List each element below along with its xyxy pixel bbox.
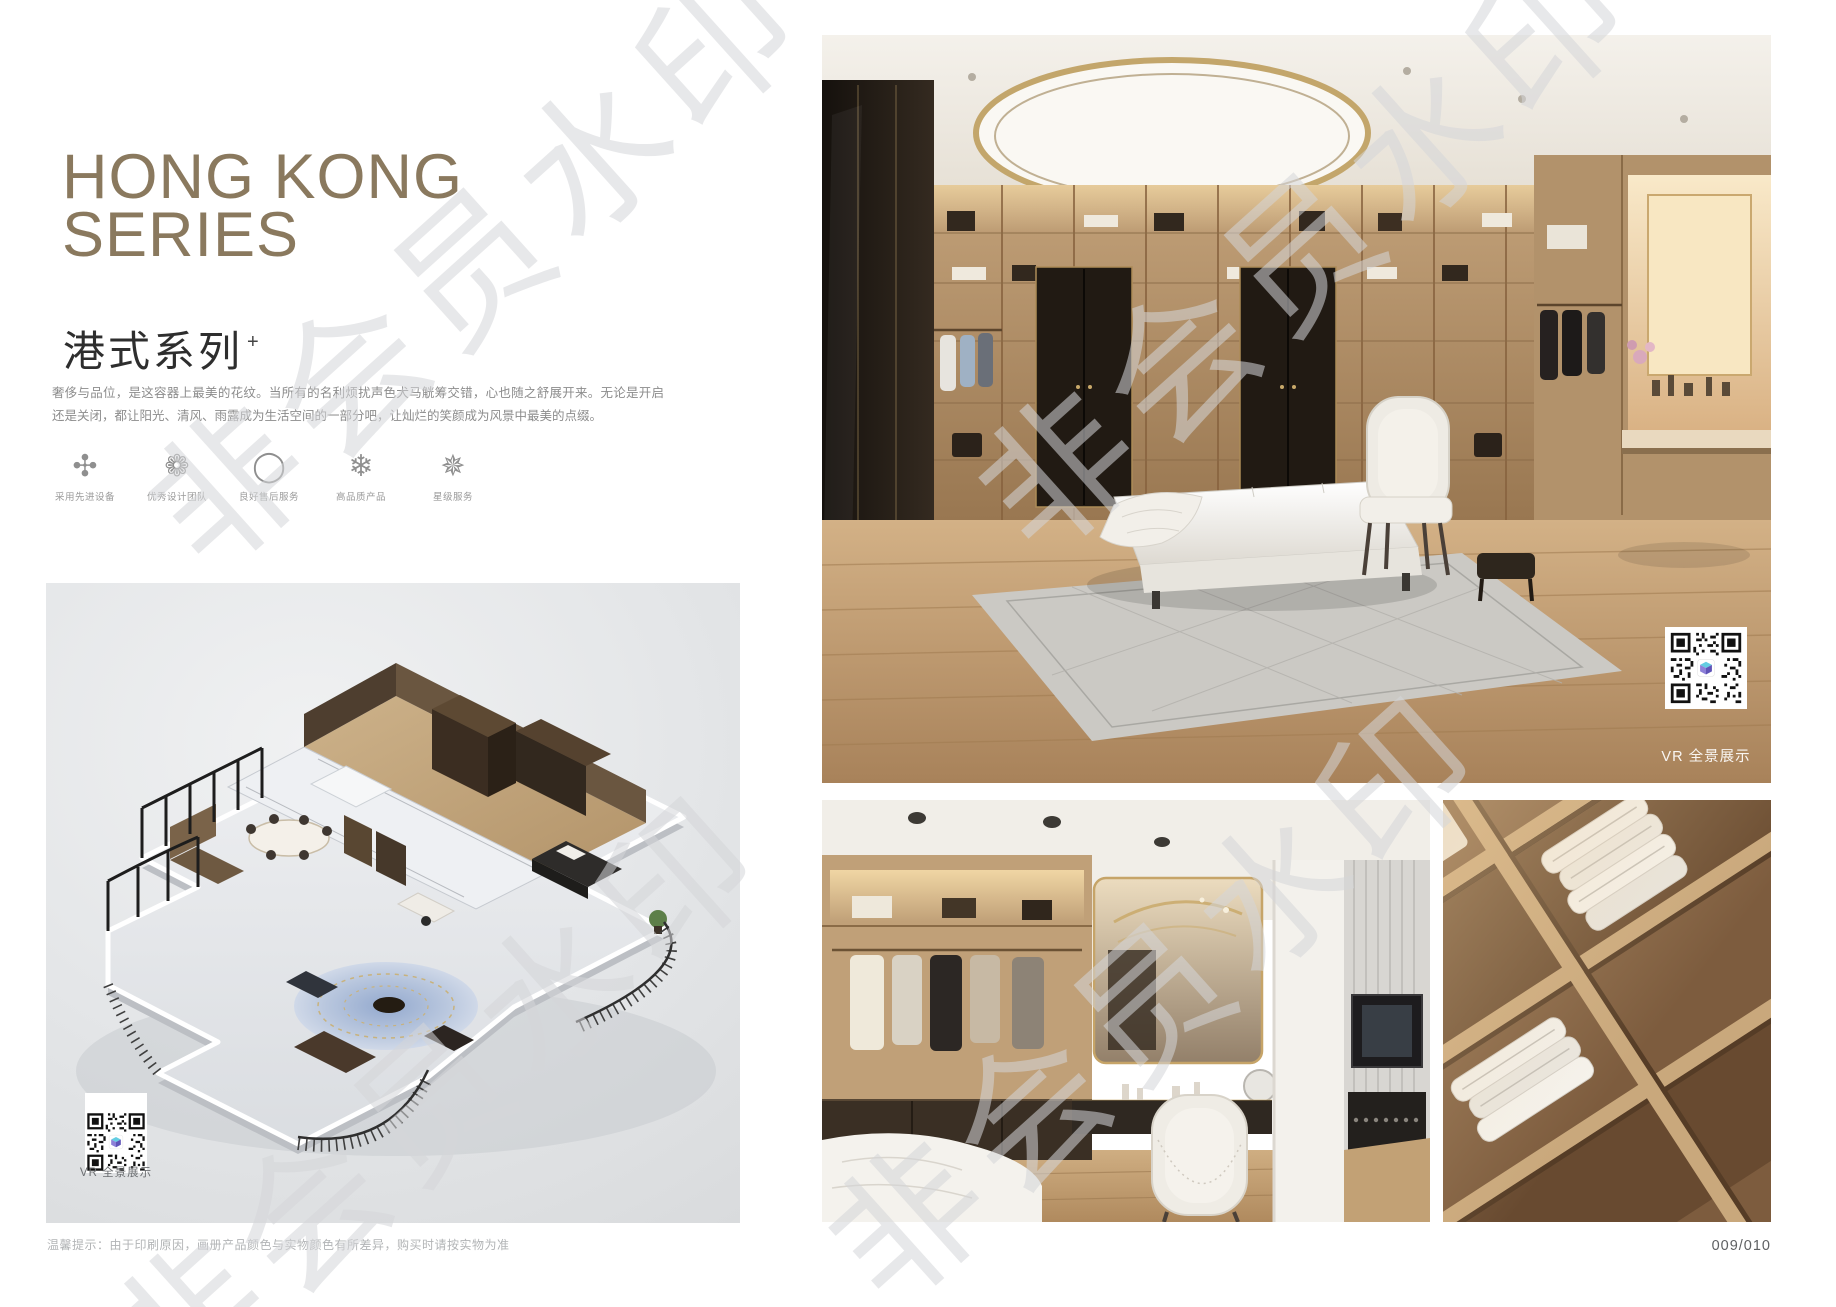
star-service-icon: ✵ bbox=[420, 450, 486, 484]
feature-row: ✣ 采用先进设备 ❁ 优秀设计团队 ◯ 良好售后服务 ❄ 高品质产品 ✵ 星级服… bbox=[52, 450, 486, 503]
page-number: 009/010 bbox=[1620, 1238, 1771, 1254]
vr-caption: VR 全景展示 bbox=[58, 1164, 174, 1180]
feature-label: 星级服务 bbox=[420, 489, 486, 503]
dressing-area-photo bbox=[822, 800, 1430, 1222]
feature-after-sales: ◯ 良好售后服务 bbox=[236, 450, 302, 503]
footer-print-note: 温馨提示：由于印刷原因，画册产品颜色与实物颜色有所差异，购买时请按实物为准 bbox=[47, 1236, 510, 1253]
feature-label: 优秀设计团队 bbox=[144, 489, 210, 503]
snowflake-icon: ❄ bbox=[328, 450, 394, 484]
walkin-closet-photo: VR 全景展示 bbox=[822, 35, 1771, 783]
rosette-icon: ❁ bbox=[144, 450, 210, 484]
catalog-spread: HONG KONG SERIES 港式系列+ 奢侈与品位，是这容器上最美的花纹。… bbox=[0, 0, 1836, 1307]
shelf-closeup-photo bbox=[1443, 800, 1771, 1222]
feature-quality-product: ❄ 高品质产品 bbox=[328, 450, 394, 503]
series-subtitle-text: 港式系列 bbox=[63, 328, 243, 375]
vr-qr-code bbox=[85, 1093, 147, 1155]
floorplan-panel: VR 全景展示 bbox=[46, 583, 740, 1223]
series-title-line1: HONG KONG bbox=[62, 148, 463, 206]
series-subtitle-cn: 港式系列+ bbox=[63, 318, 262, 379]
feature-star-service: ✵ 星级服务 bbox=[420, 450, 486, 503]
watermark-text: 非会员水印 bbox=[93, 0, 848, 610]
ornament-flower-icon: ✣ bbox=[52, 450, 118, 484]
series-title-line2: SERIES bbox=[62, 206, 463, 264]
isometric-floorplan-image bbox=[46, 601, 740, 1201]
vr-qr-code bbox=[1665, 627, 1747, 709]
feature-label: 高品质产品 bbox=[328, 489, 394, 503]
vr-caption: VR 全景展示 bbox=[1640, 745, 1771, 766]
feature-design-team: ❁ 优秀设计团队 bbox=[144, 450, 210, 503]
ring-icon: ◯ bbox=[236, 450, 302, 484]
feature-label: 良好售后服务 bbox=[236, 489, 302, 503]
series-description: 奢侈与品位，是这容器上最美的花纹。当所有的名利烦扰声色犬马觥筹交错，心也随之舒展… bbox=[52, 382, 664, 428]
feature-advanced-equipment: ✣ 采用先进设备 bbox=[52, 450, 118, 503]
subtitle-plus-mark: + bbox=[247, 331, 262, 353]
series-title: HONG KONG SERIES bbox=[62, 148, 463, 264]
feature-label: 采用先进设备 bbox=[52, 489, 118, 503]
